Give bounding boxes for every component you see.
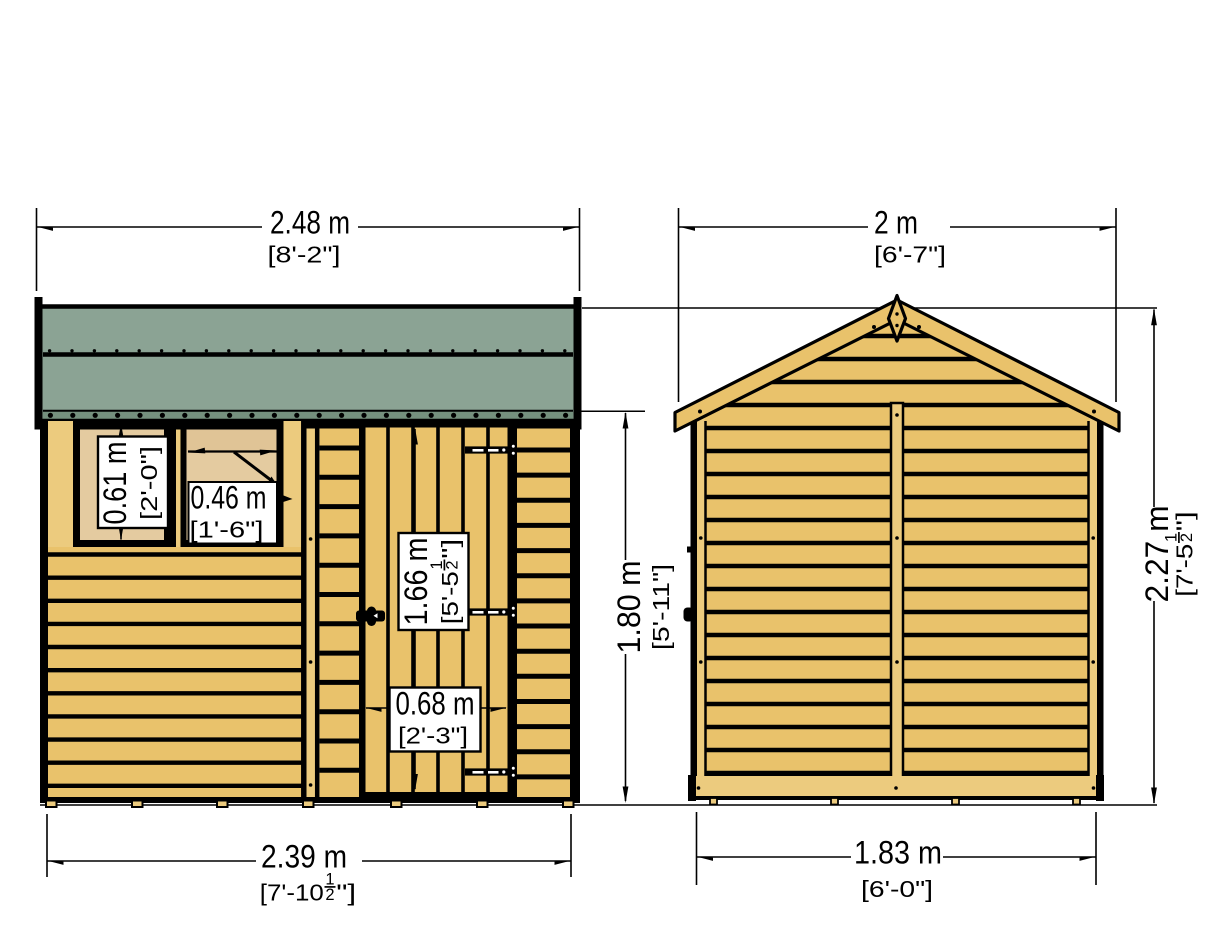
- svg-text:2.39 m: 2.39 m: [261, 839, 347, 875]
- svg-text:2: 2: [444, 560, 462, 569]
- svg-text:[2'-3"]: [2'-3"]: [398, 723, 468, 749]
- svg-text:0.68 m: 0.68 m: [396, 686, 475, 722]
- svg-text:[8'-2"]: [8'-2"]: [268, 242, 341, 268]
- svg-text:2.27 m: 2.27 m: [1139, 506, 1175, 603]
- svg-text:0.61 m: 0.61 m: [97, 442, 133, 525]
- svg-text:2 m: 2 m: [874, 205, 918, 241]
- svg-text:[7'-5: [7'-5: [1172, 544, 1198, 597]
- svg-text:[6'-0"]: [6'-0"]: [861, 876, 933, 902]
- svg-text:2.48 m: 2.48 m: [270, 205, 350, 241]
- svg-text:[6'-7"]: [6'-7"]: [874, 242, 946, 268]
- svg-text:[7'-10: [7'-10: [260, 880, 324, 906]
- svg-text:1.83 m: 1.83 m: [854, 835, 942, 871]
- svg-text:"]: "]: [336, 880, 356, 906]
- svg-text:1.80 m: 1.80 m: [611, 561, 647, 654]
- svg-text:"]: "]: [437, 539, 463, 559]
- svg-text:"]: "]: [1172, 511, 1198, 531]
- svg-text:0.46 m: 0.46 m: [191, 480, 267, 516]
- svg-text:[2'-0"]: [2'-0"]: [136, 446, 162, 520]
- svg-text:[1'-6"]: [1'-6"]: [190, 517, 264, 543]
- svg-text:2: 2: [1178, 533, 1196, 542]
- svg-text:2: 2: [325, 886, 334, 904]
- svg-text:1.66 m: 1.66 m: [398, 538, 434, 626]
- svg-text:[5'-5: [5'-5: [437, 571, 463, 624]
- svg-text:[5'-11"]: [5'-11"]: [648, 564, 674, 650]
